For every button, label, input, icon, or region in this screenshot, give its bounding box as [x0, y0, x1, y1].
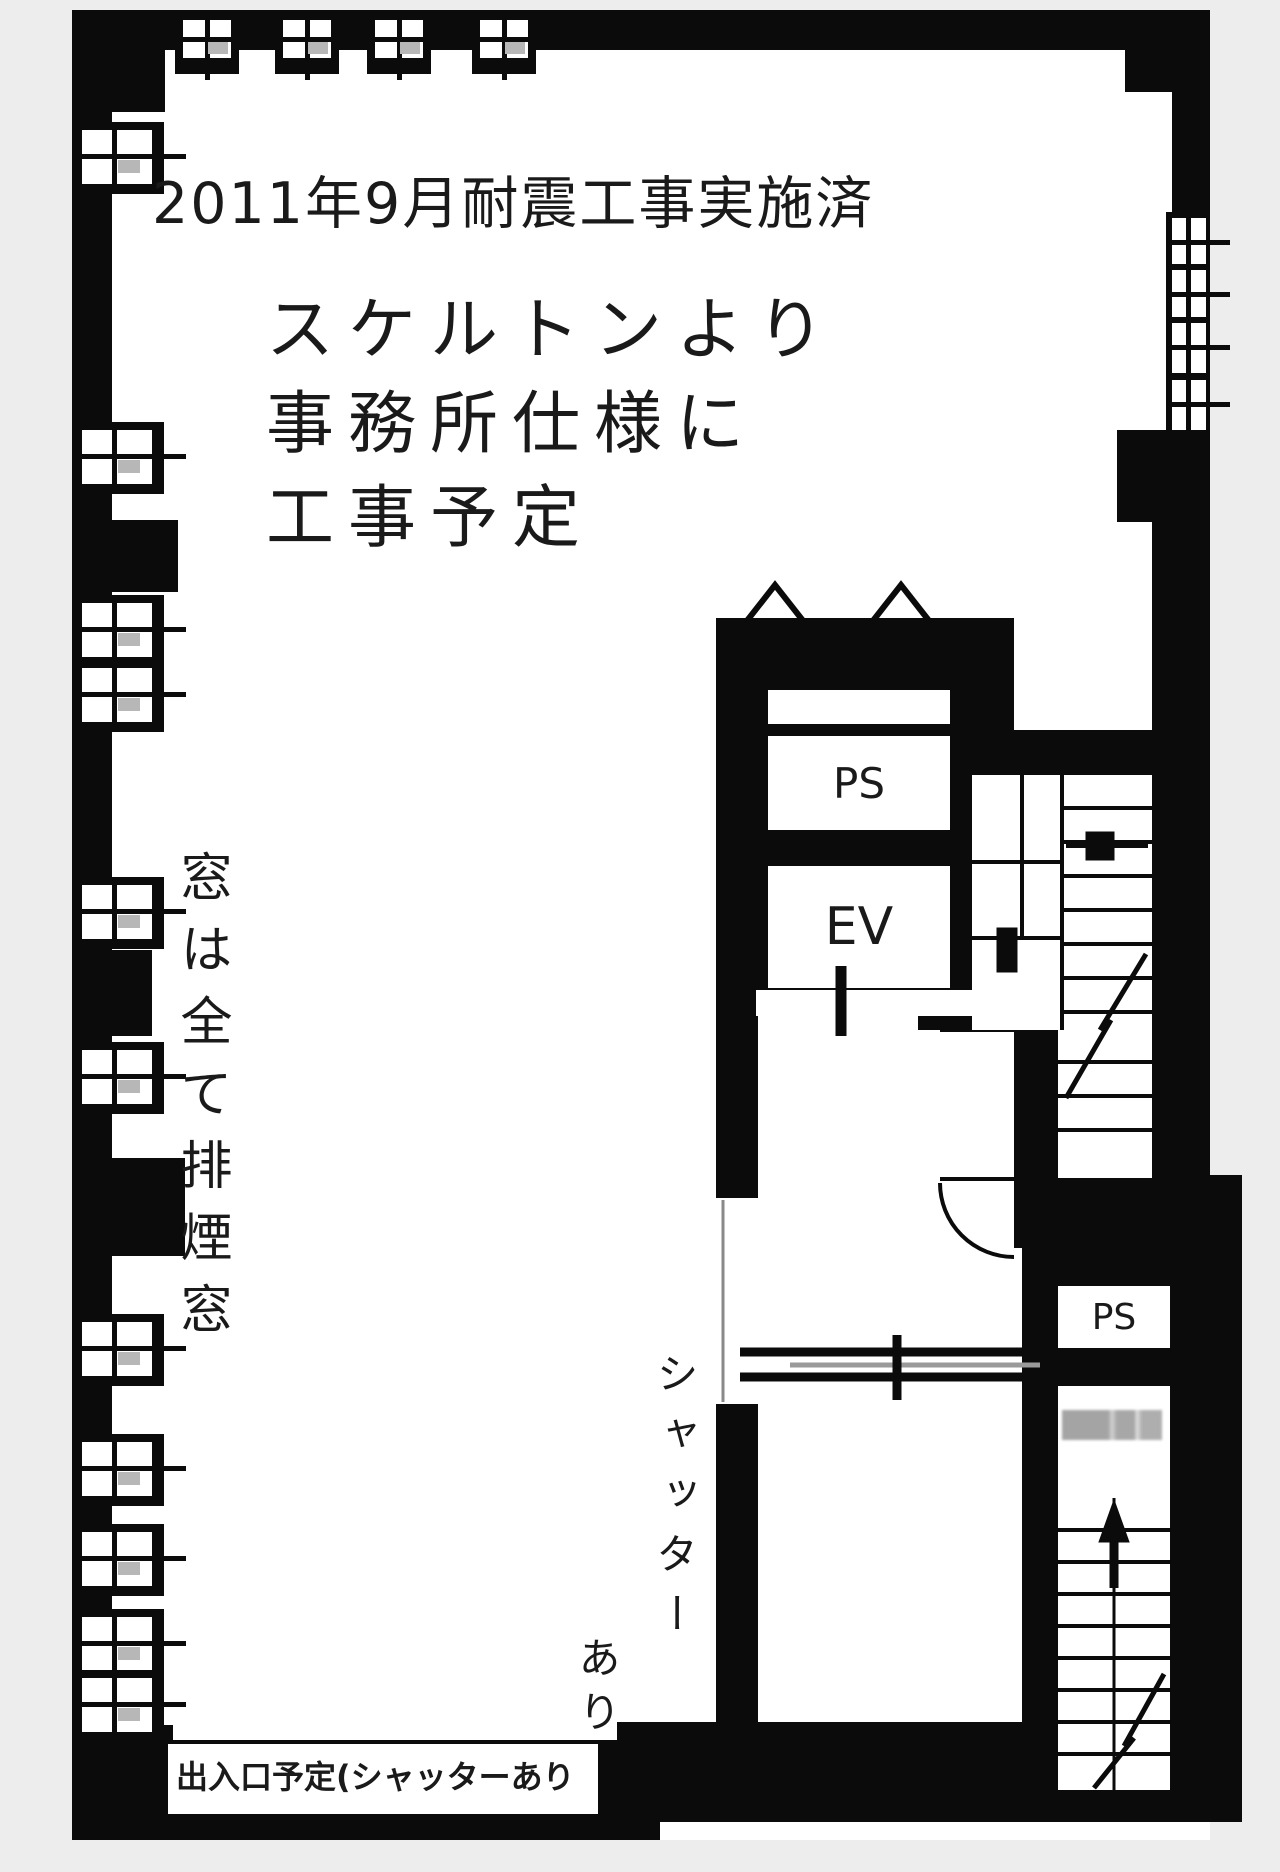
entrance-note: 出入口予定(シャッターあり [176, 1752, 575, 1798]
elevator-text: EV [825, 897, 893, 957]
shutter-note-col2: あり [566, 1636, 627, 1744]
shutter-note-col1: シャッター [644, 1352, 705, 1652]
room-label-ps-upper: PS [768, 736, 950, 830]
vent-icon [872, 585, 930, 622]
door-arc [940, 1179, 1014, 1257]
stair-arrow-marker [1086, 832, 1114, 860]
construction-plan-line: スケルトンより [266, 284, 839, 378]
construction-plan-line: 工事予定 [266, 472, 839, 566]
construction-plan-note: スケルトンより 事務所仕様に 工事予定 [266, 284, 839, 566]
ps-lower-text: PS [1092, 1297, 1137, 1338]
illegible-note [1062, 1410, 1162, 1440]
vent-icon [746, 585, 804, 622]
smoke-window-note: 窓は全て排煙窓 [164, 850, 239, 1354]
construction-plan-line: 事務所仕様に [266, 378, 839, 472]
floorplan-canvas: 2011年9月耐震工事実施済 スケルトンより 事務所仕様に 工事予定 窓は全て排… [0, 0, 1280, 1872]
stair-arrow-marker [997, 928, 1017, 972]
room-label-elevator: EV [768, 866, 950, 988]
stair-break-line [1066, 954, 1146, 1098]
seismic-retrofit-note: 2011年9月耐震工事実施済 [152, 158, 874, 240]
room-label-ps-lower: PS [1058, 1286, 1170, 1348]
ps-upper-text: PS [833, 759, 885, 808]
stair-arrow-marker [1099, 1500, 1129, 1542]
